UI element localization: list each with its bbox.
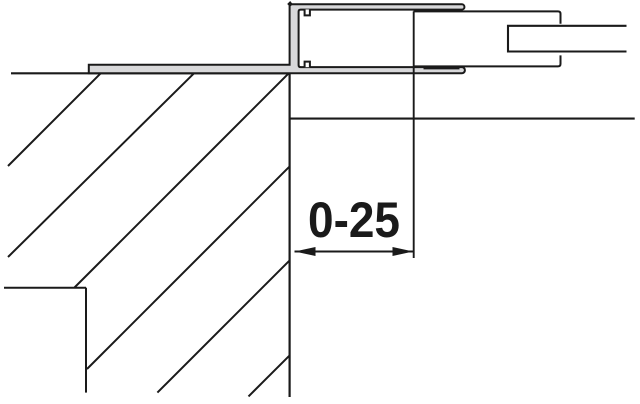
svg-text:0-25: 0-25 xyxy=(308,192,400,248)
